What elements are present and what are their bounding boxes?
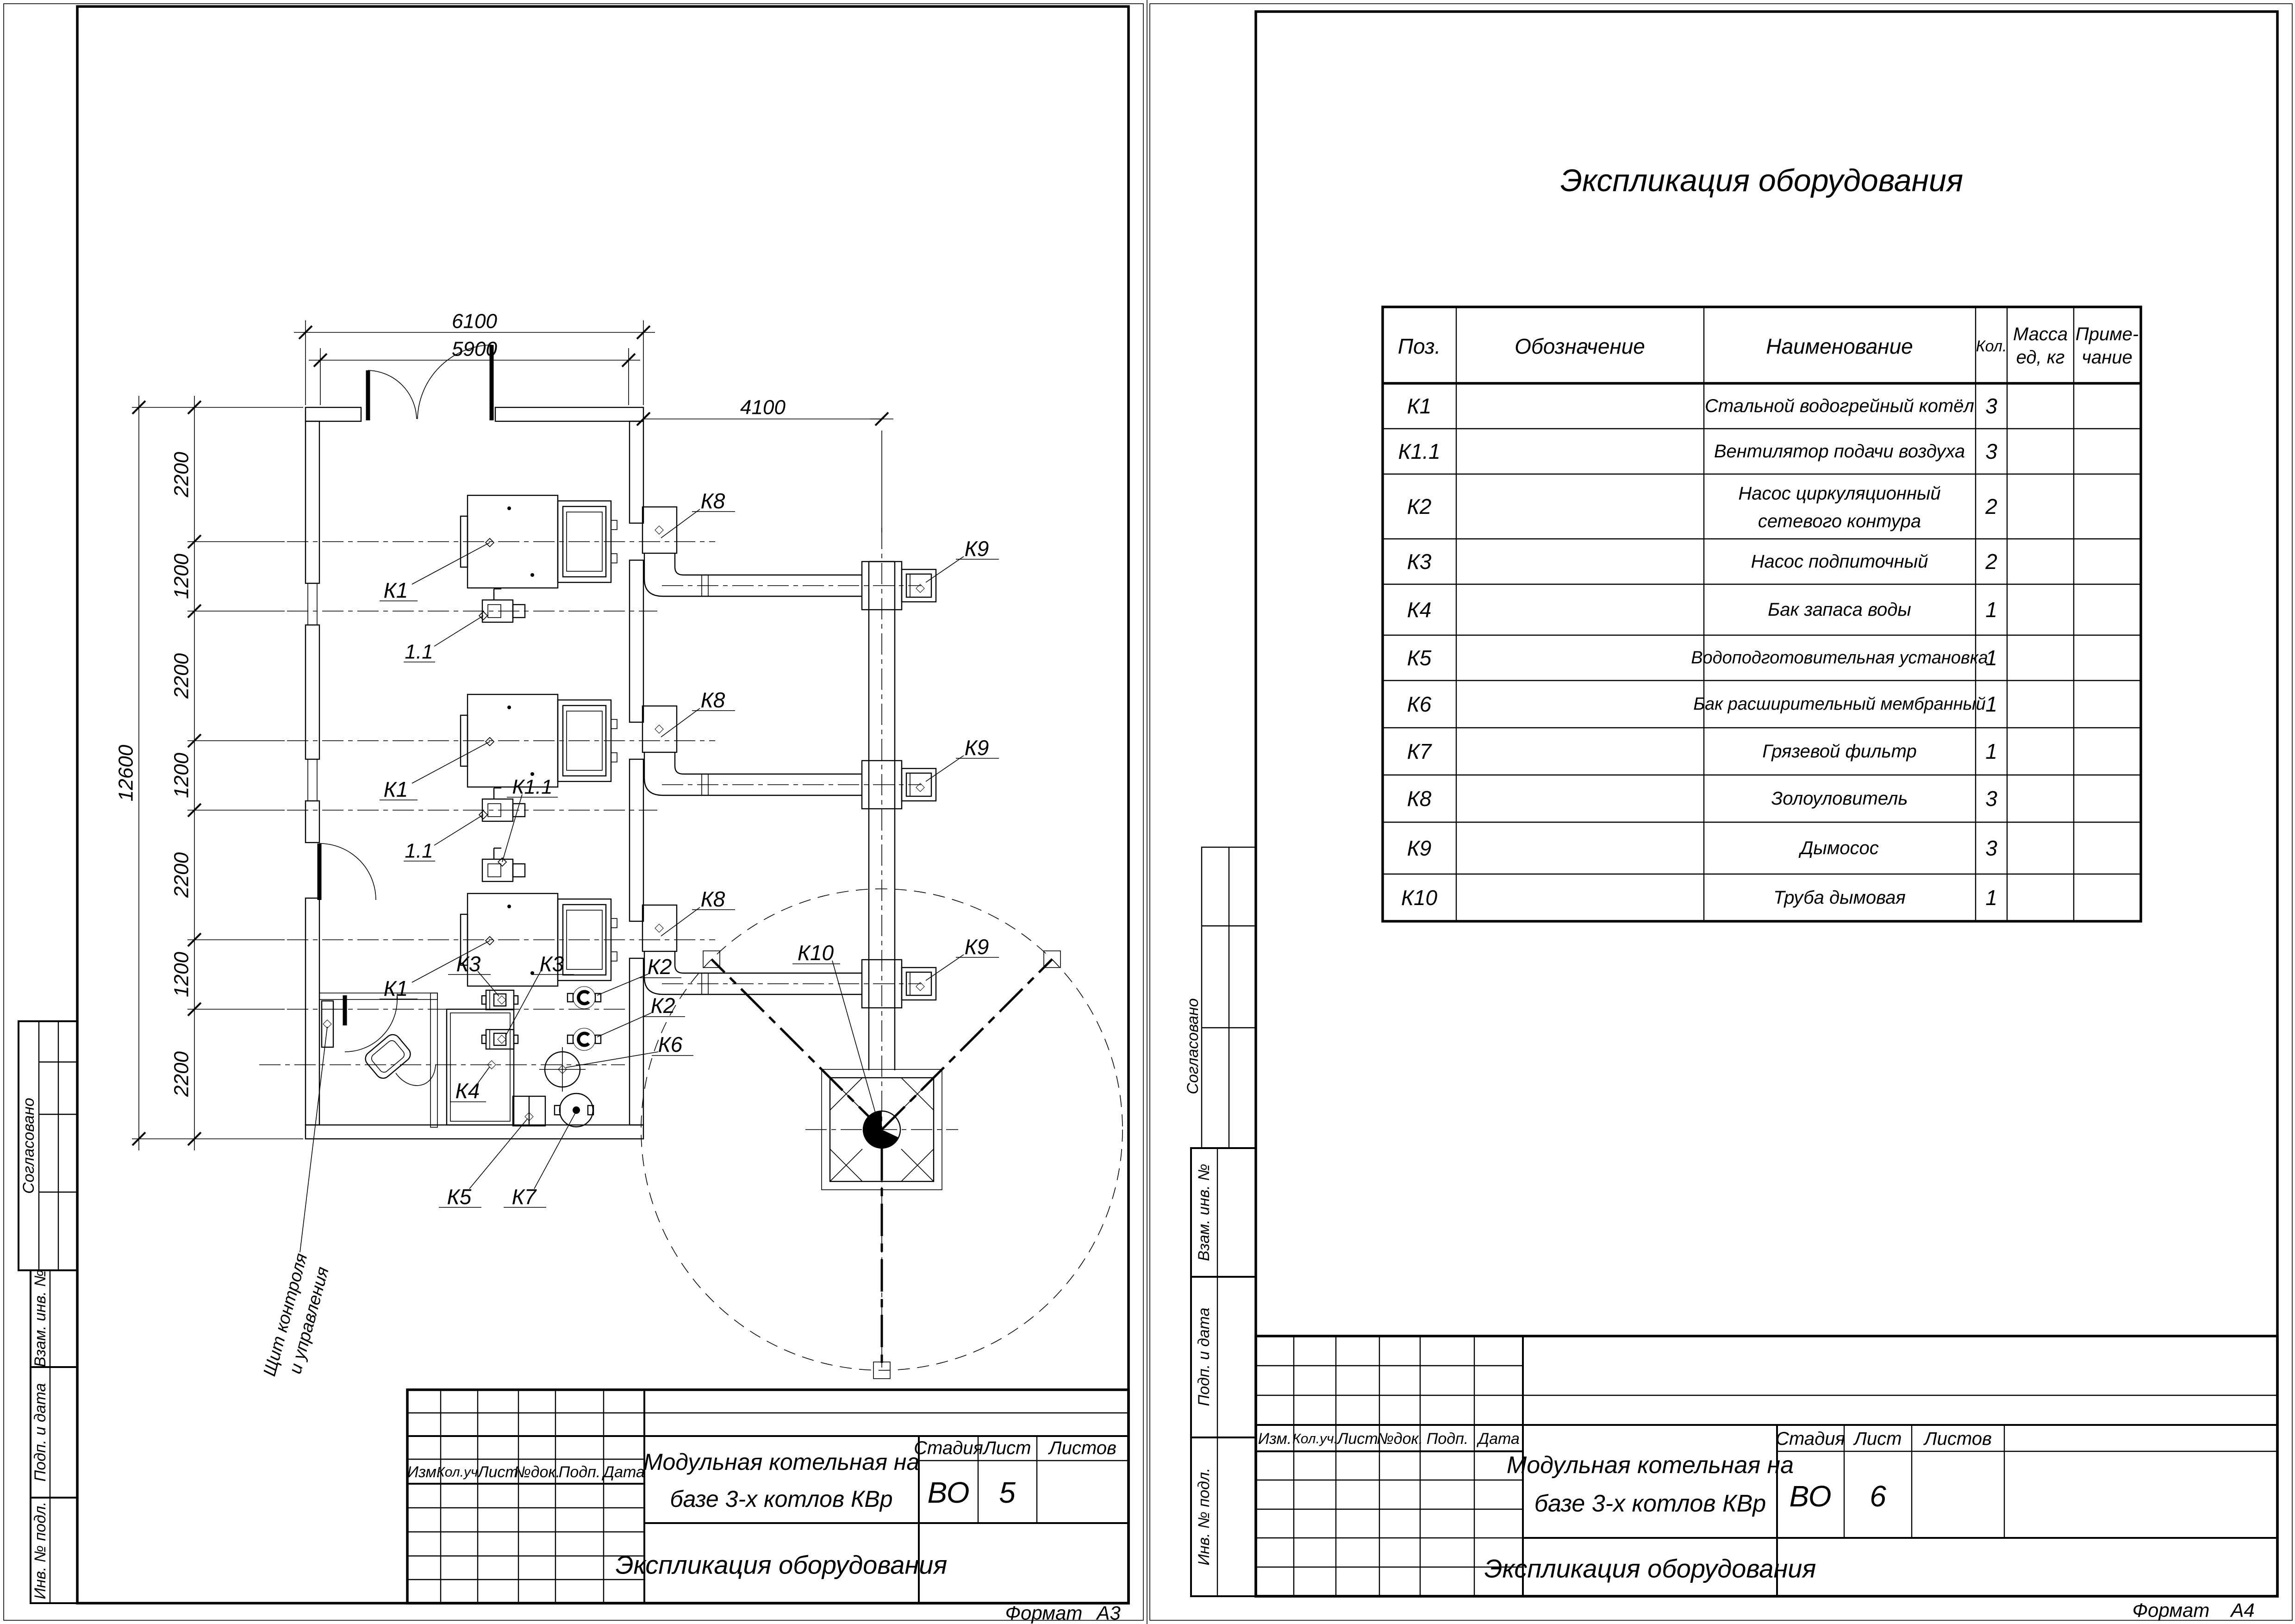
soglasovano-label: Согласовано — [20, 1098, 37, 1193]
th-designation: Обозначение — [1515, 334, 1645, 358]
label-k5: К5 — [447, 1185, 472, 1209]
label-k11: К1.1 — [512, 776, 552, 799]
a4-stage-label: Стадия — [1776, 1429, 1845, 1449]
a4-sheet-label: Лист — [1853, 1429, 1902, 1449]
th-pos: Поз. — [1398, 334, 1441, 358]
row-qty: 1 — [1985, 646, 1997, 670]
row-name: Насос циркуляционный — [1738, 483, 1940, 504]
row-pos: К3 — [1407, 550, 1432, 574]
drawing-canvas: Согласовано Взам. инв. № Подп. и дата Ин… — [0, 0, 2295, 1624]
row-name: Вентилятор подачи воздуха — [1714, 441, 1965, 462]
dim-4100: 4100 — [740, 396, 786, 419]
a4-rev-koluch: Кол.уч. — [1292, 1431, 1338, 1447]
row-qty: 3 — [1985, 394, 1997, 418]
label-k8-1: К8 — [701, 489, 725, 513]
dirt-filter-k7 — [555, 1093, 593, 1127]
row-name: Насос подпиточный — [1751, 551, 1928, 572]
row-qty: 1 — [1985, 598, 1997, 622]
row-pos: К1.1 — [1398, 439, 1440, 463]
expansion-tank-k6 — [539, 1047, 586, 1092]
table-row-k5: К5 Водоподготовительная установка 1 — [1407, 646, 1997, 670]
a4-sheet-value: 6 — [1870, 1480, 1886, 1513]
a4-rev-podp: Подп. — [1427, 1430, 1469, 1448]
a3-format-value: А3 — [1095, 1602, 1120, 1624]
row-name2: сетевого контура — [1758, 511, 1921, 531]
equipment-table-title: Экспликация оборудования — [1560, 163, 1963, 198]
a3-rev-izm: Изм. — [407, 1463, 441, 1481]
table-row-k8: К8 Золоуловитель 3 — [1407, 787, 1998, 811]
row-name: Бак расширительный мембранный — [1693, 694, 1985, 714]
a3-rev-data: Дата — [601, 1463, 645, 1481]
a4-project-title-line1: Модульная котельная на — [1507, 1452, 1794, 1479]
dim-seg-4: 1200 — [170, 753, 193, 798]
sheet-a4-side-stamp: Согласовано Взам. инв. № Подп. и дата Ин… — [1184, 847, 1256, 1596]
table-row-k7: К7 Грязевой фильтр 1 — [1407, 739, 1997, 763]
row-qty: 1 — [1985, 739, 1997, 763]
table-row-k3: К3 Насос подпиточный 2 — [1407, 550, 1997, 574]
drawing-svg: Согласовано Взам. инв. № Подп. и дата Ин… — [0, 0, 2295, 1624]
label-fan-2: 1.1 — [405, 840, 433, 862]
plan-dimensions: 6100 5900 4100 2200 — [115, 310, 894, 1151]
th-qty: Кол. — [1976, 337, 2007, 355]
sheet-a3-trim-border — [4, 4, 1143, 1620]
equipment-table: Поз. Обозначение Наименование Кол. Масса… — [1383, 307, 2141, 921]
label-k9-2: К9 — [965, 736, 989, 760]
a3-stage-label: Стадия — [914, 1438, 983, 1458]
a3-sheet-label: Лист — [982, 1438, 1031, 1458]
a4-vzam-inv-label: Взам. инв. № — [1195, 1164, 1213, 1261]
label-fan-1: 1.1 — [405, 641, 433, 663]
a4-format-label: Формат — [2133, 1599, 2210, 1621]
row-name: Труба дымовая — [1773, 887, 1906, 908]
dim-12600: 12600 — [115, 744, 137, 801]
dim-5900: 5900 — [452, 338, 497, 361]
row-name: Дымосос — [1798, 838, 1879, 858]
a4-format-value: А4 — [2229, 1599, 2254, 1621]
label-k1-3: К1 — [384, 976, 408, 1000]
inv-podl-label: Инв. № подл. — [31, 1502, 49, 1599]
table-row-k6: К6 Бак расширительный мембранный 1 — [1407, 692, 1997, 716]
label-k4: К4 — [455, 1079, 480, 1103]
water-tank-k4 — [447, 1009, 514, 1125]
flue-run-2 — [642, 706, 936, 809]
row-qty: 2 — [1985, 494, 1997, 518]
a3-doc-name: Экспликация оборудования — [616, 1550, 948, 1580]
table-row-k1: К1 Стальной водогрейный котёл 3 — [1407, 394, 1998, 418]
a4-rev-dok: №док. — [1377, 1430, 1423, 1448]
row-pos: К4 — [1407, 598, 1432, 622]
a3-rev-podp: Подп. — [559, 1463, 601, 1481]
dim-seg-2: 1200 — [170, 554, 193, 599]
a3-rev-list: Лист — [477, 1463, 518, 1481]
th-name: Наименование — [1766, 334, 1913, 358]
row-pos: К1 — [1407, 394, 1432, 418]
water-treatment-k5 — [513, 1096, 545, 1126]
a4-inv-podl-label: Инв. № подл. — [1195, 1468, 1213, 1566]
table-row-k11: К1.1 Вентилятор подачи воздуха 3 — [1398, 439, 1997, 463]
row-qty: 3 — [1985, 836, 1997, 860]
dim-seg-6: 1200 — [170, 952, 193, 997]
a4-project-title-line2: базе 3-х котлов КВр — [1534, 1490, 1766, 1517]
sheet-a4: Согласовано Взам. инв. № Подп. и дата Ин… — [1150, 4, 2292, 1621]
label-k8-2: К8 — [701, 688, 725, 712]
a3-rev-koluch: Кол.уч. — [437, 1465, 482, 1480]
sheet-a3: Согласовано Взам. инв. № Подп. и дата Ин… — [4, 0, 1147, 1624]
row-name: Стальной водогрейный котёл — [1705, 396, 1974, 416]
flue-run-3 — [642, 905, 936, 1008]
label-k10: К10 — [798, 941, 834, 965]
th-mass-2: ед, кг — [2016, 347, 2065, 368]
label-k6: К6 — [658, 1032, 683, 1056]
label-k7: К7 — [512, 1185, 537, 1209]
flue-run-1 — [642, 507, 936, 610]
row-qty: 1 — [1985, 886, 1997, 910]
dim-seg-7: 2200 — [170, 1051, 193, 1097]
label-k8-3: К8 — [701, 887, 725, 911]
a3-format-label: Формат — [1005, 1602, 1083, 1624]
row-name: Золоуловитель — [1771, 788, 1908, 809]
boiler-room-plan: К1 К1 К1 1.1 1.1 К1.1 К8 К8 — [115, 310, 1123, 1379]
feed-pump-k3-2 — [482, 1030, 518, 1049]
a3-project-title-line2: базе 3-х котлов КВр — [670, 1486, 892, 1512]
row-pos: К5 — [1407, 646, 1432, 670]
row-pos: К7 — [1407, 739, 1432, 763]
row-qty: 3 — [1985, 787, 1997, 811]
network-pump-k2-1 — [568, 987, 601, 1009]
sheet-a4-trim-border — [1150, 4, 2292, 1620]
a3-rev-dok: №док. — [514, 1463, 560, 1481]
a4-rev-data: Дата — [1476, 1430, 1520, 1448]
vzam-inv-label: Взам. инв. № — [31, 1270, 49, 1367]
sheet-a3-title-block: Изм. Кол.уч. Лист №док. Подп. Дата Модул… — [407, 1390, 1129, 1624]
feed-pump-k3-1 — [482, 990, 518, 1010]
network-pump-k2-2 — [568, 1028, 601, 1050]
a3-sheets-label: Листов — [1048, 1438, 1116, 1458]
a4-soglasovano-label: Согласовано — [1184, 998, 1202, 1094]
label-k1-1: К1 — [384, 578, 408, 602]
label-k3-2: К3 — [540, 952, 564, 976]
sheet-a4-title-block: Изм. Кол.уч. Лист №док. Подп. Дата Модул… — [1256, 1336, 2277, 1621]
row-name: Бак запаса воды — [1768, 600, 1911, 620]
table-row-k4: К4 Бак запаса воды 1 — [1407, 598, 1997, 622]
entrance-doors — [319, 345, 492, 900]
label-k2-2: К2 — [651, 993, 675, 1018]
row-pos: К8 — [1407, 787, 1432, 811]
a4-stage-value: ВО — [1789, 1480, 1831, 1513]
row-qty: 2 — [1985, 550, 1997, 574]
row-pos: К2 — [1407, 494, 1432, 518]
dim-seg-5: 2200 — [170, 852, 193, 898]
table-row-k2: К2 Насос циркуляционный сетевого контура… — [1407, 483, 1997, 531]
a4-podp-data-label: Подп. и дата — [1195, 1308, 1213, 1406]
a4-rev-izm: Изм. — [1258, 1430, 1292, 1448]
dim-seg-3: 2200 — [170, 653, 193, 699]
air-fan-1 — [482, 589, 525, 622]
plan-building-walls — [306, 407, 643, 1139]
sheet-a3-side-stamp: Согласовано Взам. инв. № Подп. и дата Ин… — [19, 1021, 77, 1603]
podp-data-label: Подп. и дата — [31, 1383, 49, 1482]
dim-6100: 6100 — [452, 310, 497, 333]
sheet-a3-frame — [77, 6, 1129, 1603]
row-pos: К10 — [1401, 886, 1438, 910]
label-k2-1: К2 — [648, 955, 672, 979]
a4-doc-name: Экспликация оборудования — [1484, 1554, 1816, 1583]
label-k9-1: К9 — [965, 537, 989, 561]
service-room — [319, 993, 437, 1127]
row-name: Грязевой фильтр — [1762, 741, 1917, 762]
table-row-k10: К10 Труба дымовая 1 — [1401, 886, 1997, 910]
a4-rev-list: Лист — [1336, 1430, 1378, 1448]
row-qty: 1 — [1985, 692, 1997, 716]
row-name: Водоподготовительная установка — [1691, 648, 1988, 668]
a3-sheet-value: 5 — [999, 1476, 1016, 1509]
a4-sheets-label: Листов — [1923, 1429, 1992, 1449]
th-note-1: Приме- — [2076, 324, 2139, 344]
a3-project-title-line1: Модульная котельная на — [643, 1449, 919, 1475]
row-qty: 3 — [1985, 439, 1997, 463]
th-mass-1: Масса — [2013, 324, 2068, 344]
row-pos: К6 — [1407, 692, 1432, 716]
label-k3-1: К3 — [456, 952, 481, 976]
dim-seg-1: 2200 — [170, 452, 193, 498]
table-row-k9: К9 Дымосос 3 — [1407, 836, 1998, 860]
row-pos: К9 — [1407, 836, 1432, 860]
a3-stage-value: ВО — [927, 1476, 969, 1509]
th-note-2: чание — [2082, 347, 2132, 368]
label-k9-3: К9 — [965, 935, 989, 959]
label-k1-2: К1 — [384, 777, 408, 801]
